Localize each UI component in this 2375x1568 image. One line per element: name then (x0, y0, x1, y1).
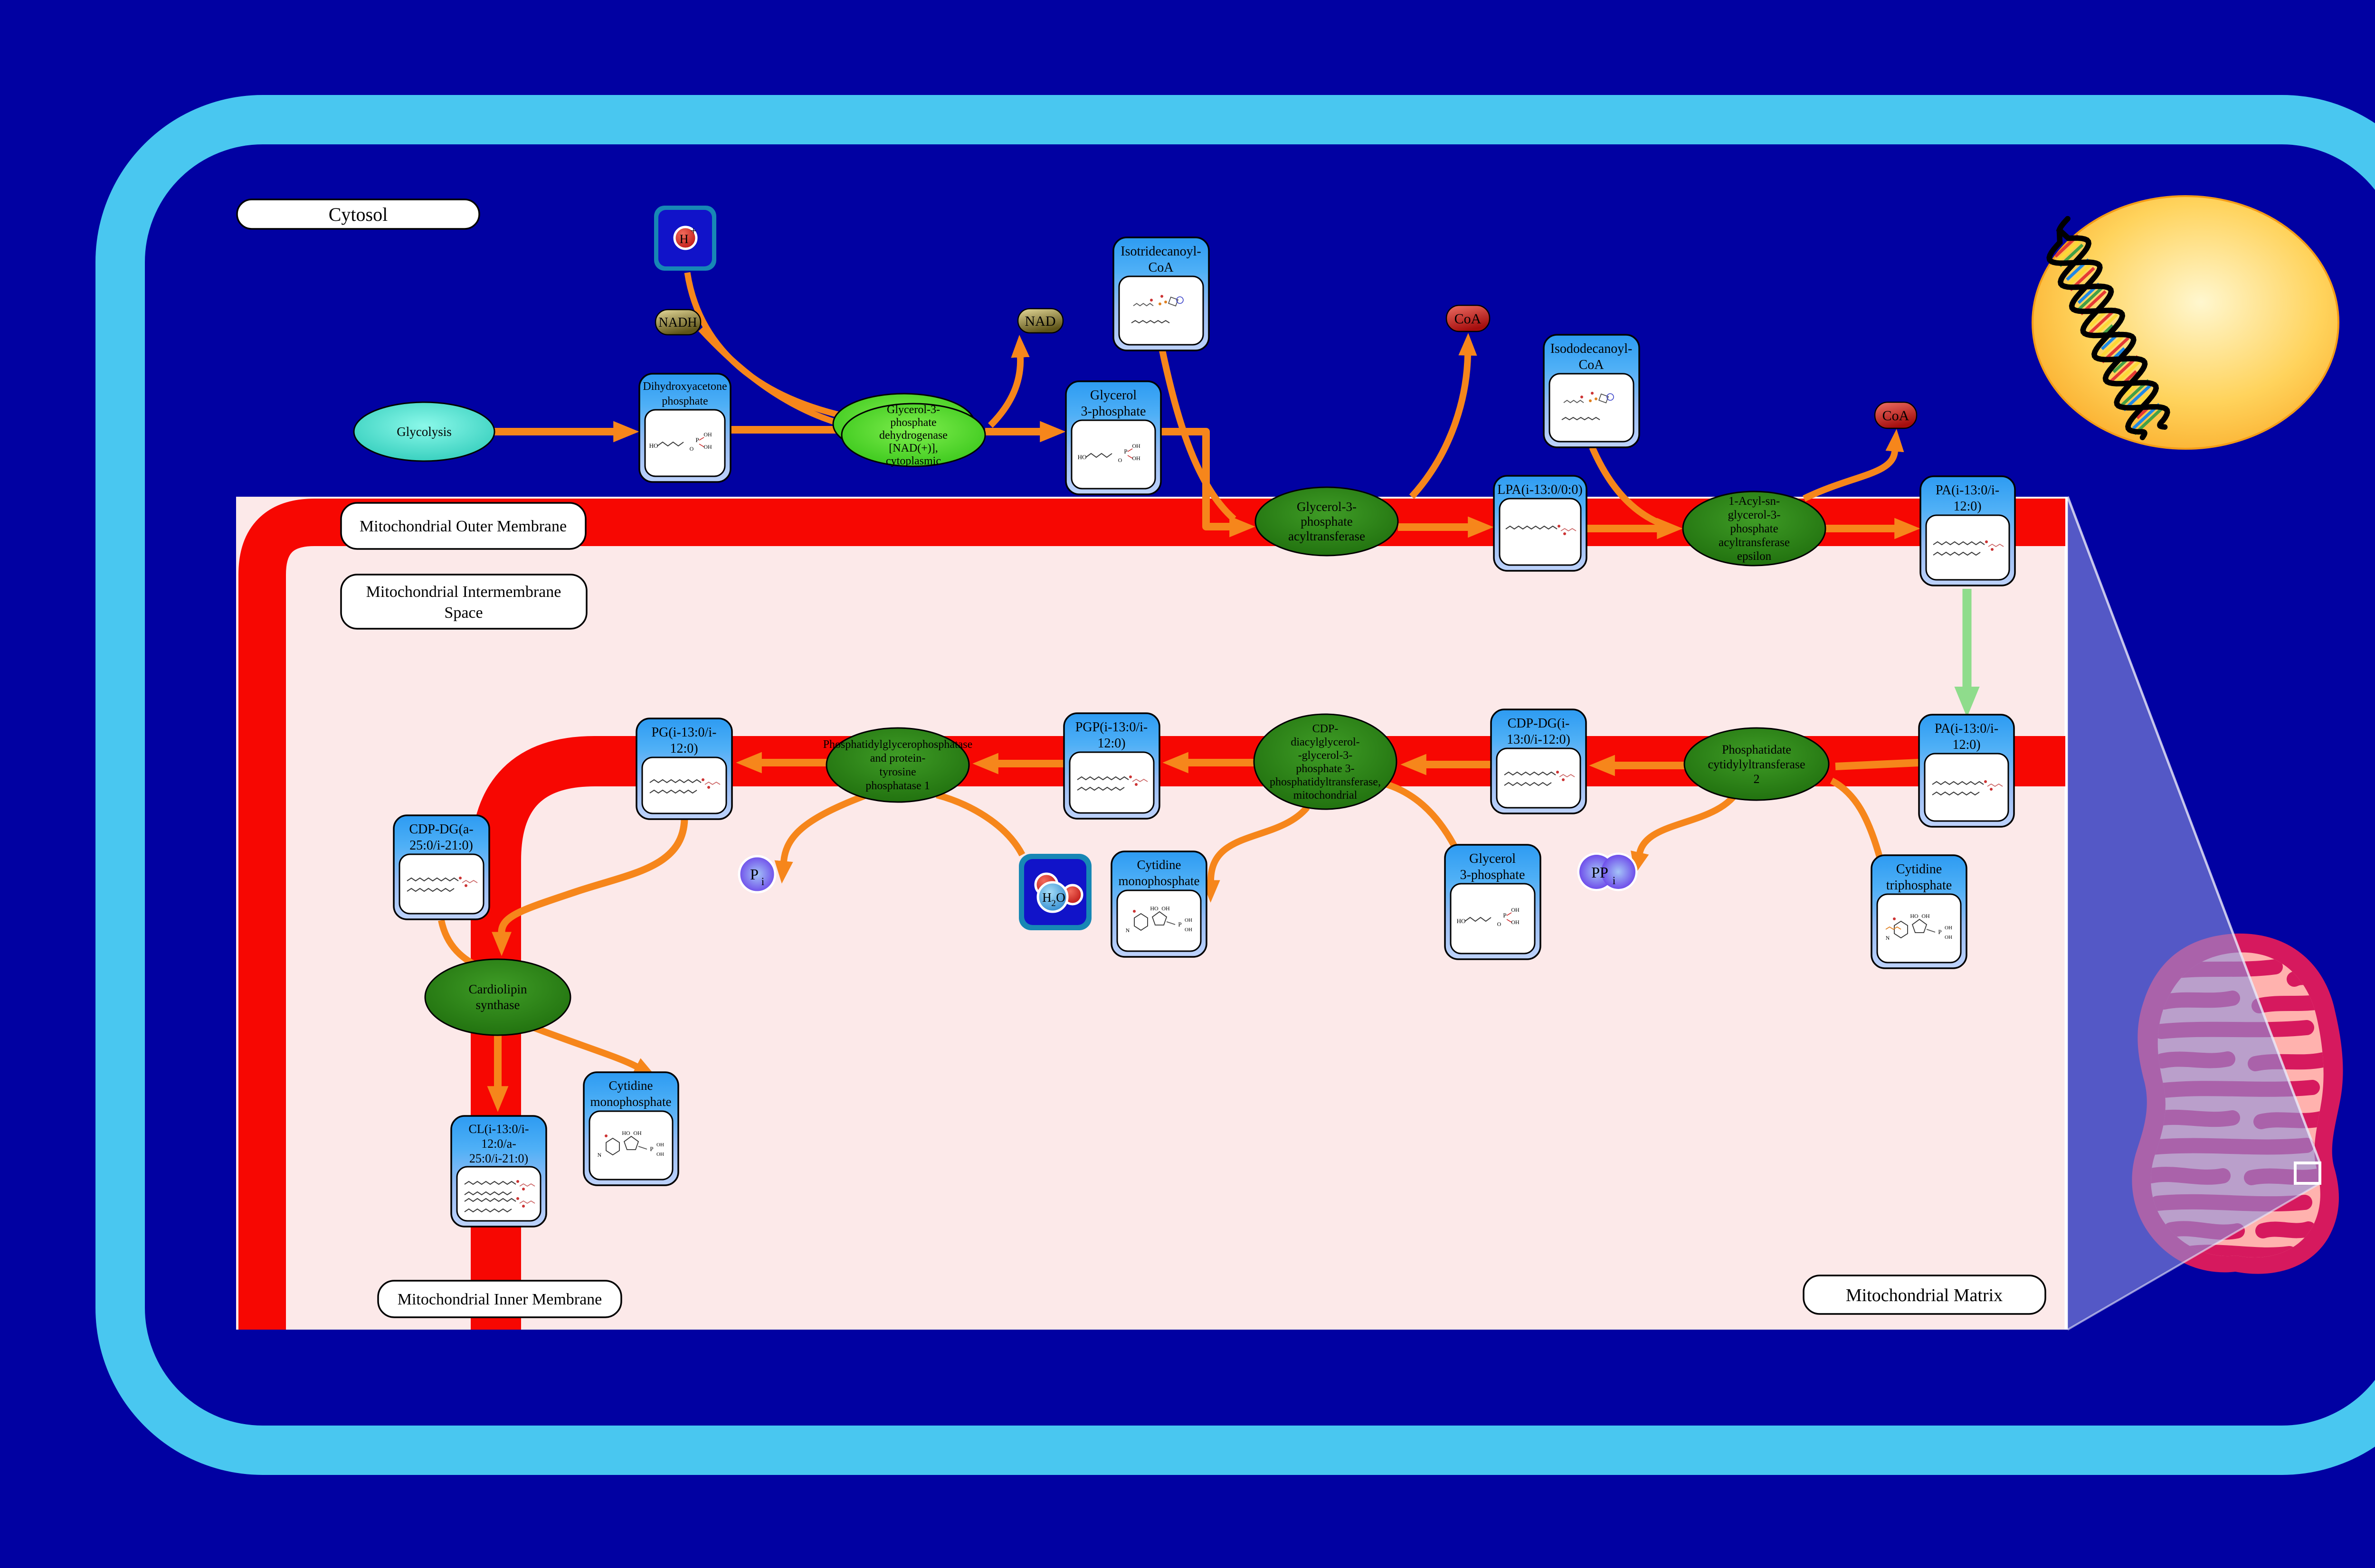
svg-text:Isotridecanoyl-: Isotridecanoyl- (1121, 244, 1201, 259)
svg-text:PGP(i-13:0/i-: PGP(i-13:0/i- (1075, 720, 1148, 735)
svg-text:HO: HO (1457, 917, 1466, 925)
svg-text:Glycerol: Glycerol (1469, 851, 1516, 866)
svg-text:Isododecanoyl-: Isododecanoyl- (1550, 341, 1633, 356)
svg-text:monophosphate: monophosphate (1119, 874, 1200, 888)
svg-text:Glycerol: Glycerol (1090, 388, 1137, 403)
svg-text:acyltransferase: acyltransferase (1719, 536, 1790, 549)
svg-text:Phosphatidate: Phosphatidate (1722, 743, 1791, 756)
svg-text:OH: OH (656, 1152, 664, 1157)
svg-text:N: N (598, 1152, 602, 1158)
svg-text:Glycerol-3-: Glycerol-3- (1297, 500, 1357, 514)
svg-text:tyrosine: tyrosine (879, 766, 916, 778)
svg-text:and protein-: and protein- (870, 752, 926, 765)
svg-text:N: N (1126, 927, 1130, 934)
svg-text:PA(i-13:0/i-: PA(i-13:0/i- (1935, 721, 1998, 736)
svg-text:HO: HO (649, 442, 658, 449)
svg-text:O: O (690, 445, 694, 452)
svg-text:3-phosphate: 3-phosphate (1081, 404, 1146, 419)
svg-text:phosphate: phosphate (1730, 522, 1778, 535)
svg-text:CDP-DG(a-: CDP-DG(a- (409, 822, 473, 837)
svg-text:H: H (680, 232, 689, 246)
svg-text:OH: OH (1945, 925, 1952, 931)
svg-text:dehydrogenase: dehydrogenase (879, 429, 948, 442)
svg-text:[NAD(+)],: [NAD(+)], (889, 442, 938, 454)
svg-text:P: P (1178, 921, 1181, 928)
svg-text:phosphate: phosphate (890, 416, 936, 429)
svg-text:1-Acyl-sn-: 1-Acyl-sn- (1729, 495, 1780, 508)
svg-text:CL(i-13:0/i-: CL(i-13:0/i- (468, 1122, 529, 1136)
svg-text:Cytosol: Cytosol (329, 204, 388, 225)
svg-text:HO: HO (1078, 453, 1087, 461)
svg-text:P: P (1938, 928, 1941, 935)
svg-text:HO: HO (1910, 913, 1919, 919)
svg-text:acyltransferase: acyltransferase (1288, 529, 1365, 543)
svg-text:NADH: NADH (659, 315, 697, 330)
svg-text:N: N (1886, 935, 1890, 941)
svg-text:CDP-: CDP- (1312, 723, 1339, 735)
svg-text:OH: OH (1132, 443, 1140, 449)
svg-text:Glycerol-3-: Glycerol-3- (887, 404, 940, 416)
svg-text:25:0/i-21:0): 25:0/i-21:0) (409, 838, 473, 853)
svg-text:cytidylyltransferase: cytidylyltransferase (1708, 757, 1805, 771)
svg-text:Dihydroxyacetone: Dihydroxyacetone (643, 380, 727, 393)
svg-text:2: 2 (1051, 898, 1056, 908)
svg-text:OH: OH (1132, 455, 1140, 462)
svg-text:12:0/a-: 12:0/a- (481, 1137, 516, 1151)
svg-text:H: H (1042, 890, 1052, 905)
svg-text:CoA: CoA (1579, 358, 1605, 372)
svg-text:CoA: CoA (1149, 260, 1174, 275)
svg-text:CoA: CoA (1454, 311, 1482, 327)
svg-text:P: P (1124, 448, 1127, 455)
svg-text:OH: OH (1945, 935, 1952, 940)
svg-text:+: + (690, 225, 697, 237)
svg-text:Cytidine: Cytidine (1896, 862, 1942, 877)
svg-text:12:0): 12:0) (1952, 737, 1980, 752)
svg-text:synthase: synthase (476, 998, 520, 1012)
svg-text:Cardiolipin: Cardiolipin (469, 982, 527, 996)
svg-text:CDP-DG(i-: CDP-DG(i- (1508, 716, 1570, 731)
svg-text:diacylglycerol-: diacylglycerol- (1291, 736, 1359, 748)
svg-text:-glycerol-3-: -glycerol-3- (1298, 749, 1353, 762)
svg-text:P: P (695, 436, 699, 444)
svg-text:Cytidine: Cytidine (1137, 858, 1181, 872)
svg-text:PG(i-13:0/i-: PG(i-13:0/i- (652, 725, 717, 740)
svg-text:OH: OH (703, 431, 712, 438)
svg-text:PA(i-13:0/i-: PA(i-13:0/i- (1936, 483, 1999, 498)
svg-text:Phosphatidylglycerophosphatase: Phosphatidylglycerophosphatase (823, 738, 973, 751)
svg-text:12:0): 12:0) (1097, 736, 1125, 751)
svg-text:mitochondrial: mitochondrial (1293, 789, 1358, 802)
svg-text:OH: OH (1921, 913, 1930, 919)
svg-text:P: P (1503, 912, 1506, 919)
svg-text:phosphate: phosphate (662, 395, 708, 407)
svg-text:25:0/i-21:0): 25:0/i-21:0) (469, 1152, 528, 1165)
svg-text:13:0/i-12:0): 13:0/i-12:0) (1507, 732, 1570, 747)
svg-text:P: P (650, 1145, 653, 1152)
svg-text:OH: OH (1511, 907, 1520, 913)
svg-text:O: O (1118, 457, 1122, 463)
svg-text:O: O (1056, 890, 1065, 905)
svg-text:OH: OH (1185, 927, 1192, 933)
svg-text:HO: HO (622, 1130, 630, 1136)
svg-text:3-phosphate: 3-phosphate (1460, 868, 1525, 882)
svg-text:Mitochondrial Outer Membrane: Mitochondrial Outer Membrane (360, 518, 567, 535)
svg-text:epsilon: epsilon (1737, 550, 1772, 563)
svg-text:Mitochondrial Intermembrane: Mitochondrial Intermembrane (366, 583, 561, 601)
svg-text:OH: OH (703, 444, 712, 450)
svg-text:CoA: CoA (1882, 408, 1909, 424)
svg-text:triphosphate: triphosphate (1886, 878, 1952, 893)
svg-text:glycerol-3-: glycerol-3- (1728, 509, 1780, 521)
svg-text:phosphate: phosphate (1301, 514, 1352, 529)
svg-text:phosphatidyltransferase,: phosphatidyltransferase, (1270, 776, 1381, 788)
svg-text:12:0): 12:0) (1953, 499, 1981, 514)
svg-text:P: P (750, 866, 759, 883)
svg-text:OH: OH (1511, 919, 1520, 926)
svg-text:OH: OH (1161, 905, 1170, 912)
svg-text:Space: Space (444, 604, 483, 622)
svg-text:phosphatase 1: phosphatase 1 (865, 780, 930, 792)
svg-text:OH: OH (1185, 917, 1192, 923)
svg-text:cytoplasmic: cytoplasmic (886, 455, 941, 467)
svg-text:i: i (1613, 875, 1615, 887)
svg-text:LPA(i-13:0/0:0): LPA(i-13:0/0:0) (1497, 482, 1582, 497)
svg-text:OH: OH (633, 1130, 642, 1136)
svg-text:12:0): 12:0) (670, 741, 698, 756)
svg-text:OH: OH (656, 1142, 664, 1148)
svg-text:monophosphate: monophosphate (590, 1095, 672, 1109)
svg-text:Glycolysis: Glycolysis (397, 425, 452, 439)
svg-text:PP: PP (1591, 864, 1608, 881)
svg-text:i: i (761, 876, 764, 888)
svg-text:NAD: NAD (1025, 313, 1056, 329)
svg-text:phosphate 3-: phosphate 3- (1296, 763, 1354, 775)
svg-text:Cytidine: Cytidine (609, 1078, 653, 1093)
svg-text:HO: HO (1150, 905, 1159, 912)
svg-text:Mitochondrial Inner Membrane: Mitochondrial Inner Membrane (398, 1291, 602, 1308)
svg-text:2: 2 (1754, 772, 1760, 786)
svg-text:Mitochondrial Matrix: Mitochondrial Matrix (1846, 1285, 2003, 1305)
svg-text:O: O (1497, 921, 1501, 927)
